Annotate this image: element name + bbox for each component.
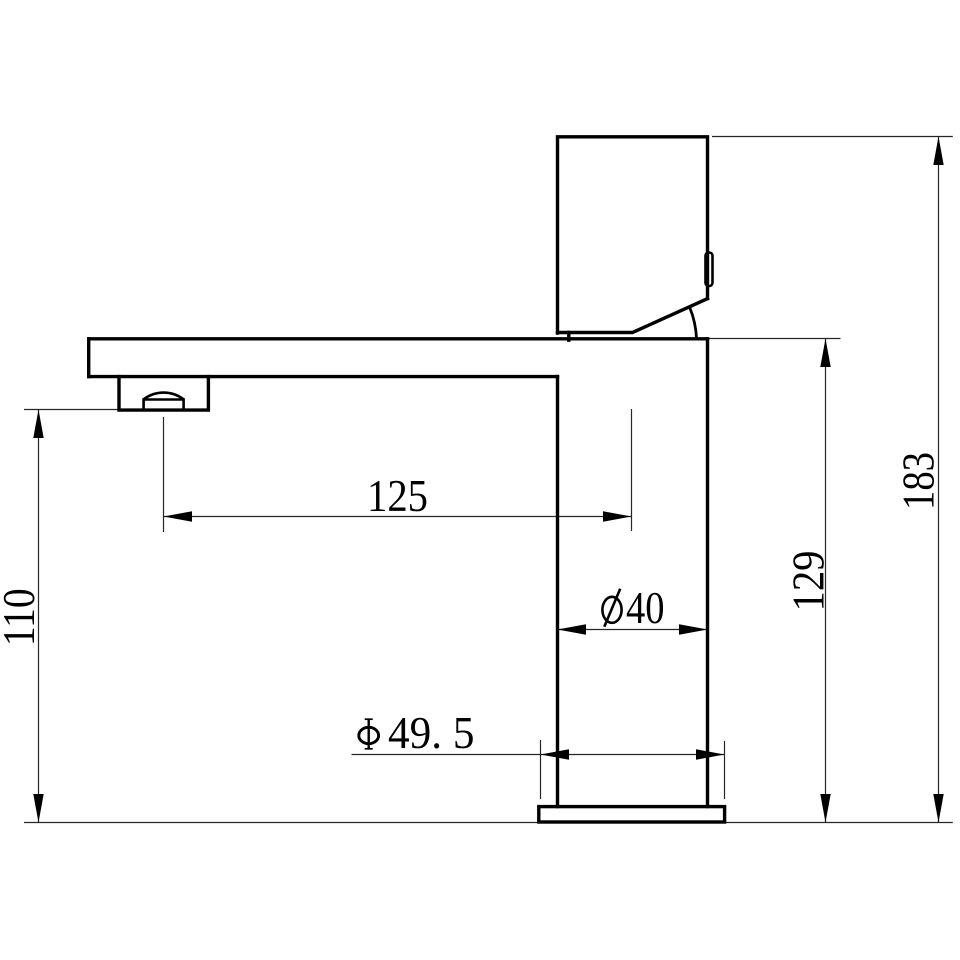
svg-text:125: 125 <box>367 471 428 521</box>
svg-text:129: 129 <box>784 551 834 612</box>
svg-text:40: 40 <box>626 583 665 633</box>
svg-text:49. 5: 49. 5 <box>388 708 475 758</box>
svg-text:183: 183 <box>894 452 944 510</box>
svg-text:110: 110 <box>0 588 44 646</box>
